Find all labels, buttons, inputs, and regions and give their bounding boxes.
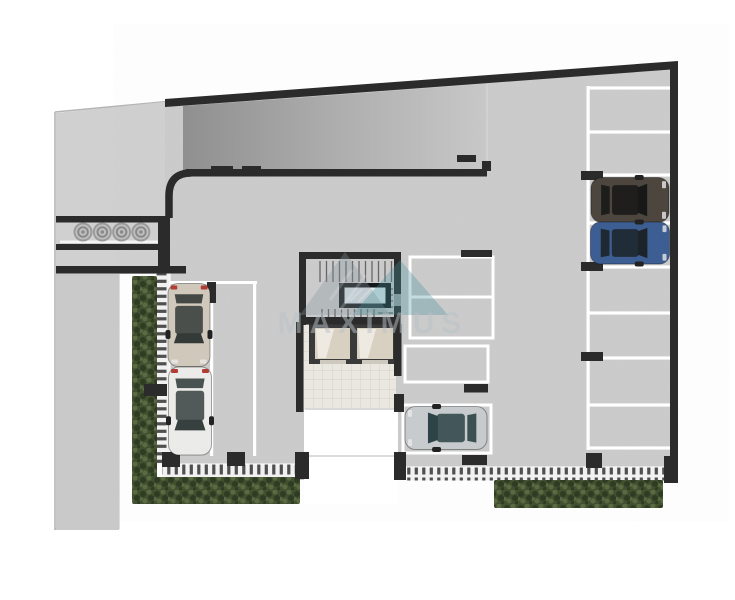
side-mirror bbox=[432, 404, 441, 409]
parking-divider bbox=[588, 86, 670, 89]
bin-room-counter-line bbox=[60, 241, 160, 244]
side-mirror bbox=[208, 330, 213, 339]
wall-lobby-right-stub bbox=[394, 394, 404, 412]
wall-stub bbox=[394, 452, 406, 480]
parking-divider bbox=[588, 130, 670, 133]
parking-divider bbox=[588, 311, 670, 314]
wall-binroom-top bbox=[56, 216, 168, 223]
wall-stub bbox=[461, 250, 492, 257]
headlight bbox=[408, 439, 412, 446]
wall-lower-left bbox=[56, 266, 186, 274]
bin-1 bbox=[75, 224, 92, 241]
roof-glass bbox=[612, 185, 639, 215]
door-marker bbox=[211, 166, 233, 176]
headlight bbox=[662, 212, 666, 219]
rear-window bbox=[601, 185, 610, 216]
windshield bbox=[638, 228, 647, 258]
wall-stub bbox=[664, 456, 678, 483]
car-beige-hatchback bbox=[166, 284, 213, 367]
taillight bbox=[201, 286, 208, 290]
taillight bbox=[202, 369, 209, 373]
car-silver-sedan bbox=[405, 404, 487, 452]
taillight bbox=[171, 286, 178, 290]
headlight bbox=[200, 360, 207, 364]
roof-glass bbox=[612, 229, 639, 257]
wall-binroom-bottom bbox=[56, 244, 168, 250]
wall-stub bbox=[581, 352, 603, 361]
wall-stair-top bbox=[299, 252, 401, 259]
headlight bbox=[172, 448, 179, 452]
fence-bottom-left bbox=[162, 464, 300, 478]
door-marker bbox=[242, 166, 261, 176]
car-blue-sedan bbox=[591, 220, 670, 267]
car-dark-suv bbox=[591, 175, 669, 225]
side-mirror bbox=[166, 330, 171, 339]
wall-stub bbox=[464, 384, 488, 393]
side-mirror bbox=[635, 262, 644, 267]
lobby-threshold bbox=[305, 408, 396, 410]
fence-bottom-right bbox=[406, 467, 668, 481]
wall-stub bbox=[586, 453, 602, 468]
parking-divider bbox=[588, 446, 670, 449]
floor-plan: MAXIMUS bbox=[0, 0, 735, 600]
bin-4 bbox=[132, 224, 149, 241]
roof-glass bbox=[437, 414, 465, 442]
parking-divider bbox=[588, 403, 670, 406]
floor-plan-canvas: MAXIMUS bbox=[0, 0, 735, 600]
wall-stub bbox=[462, 455, 487, 465]
car-white-sedan bbox=[166, 367, 214, 455]
watermark-text: MAXIMUS bbox=[278, 307, 469, 340]
bin-3 bbox=[113, 224, 130, 241]
side-mirror bbox=[432, 447, 441, 452]
headlight bbox=[662, 181, 666, 188]
taillight bbox=[171, 369, 178, 373]
windshield bbox=[174, 333, 204, 343]
headlight bbox=[171, 360, 178, 364]
roof-glass bbox=[176, 391, 204, 421]
headlight bbox=[201, 448, 208, 452]
side-mirror bbox=[166, 416, 171, 425]
parking-line bbox=[253, 284, 256, 456]
wall-stub bbox=[295, 452, 309, 479]
wall-stub bbox=[482, 161, 491, 171]
side-mirror bbox=[209, 416, 214, 425]
rear-window bbox=[175, 378, 204, 388]
headlight bbox=[663, 254, 667, 261]
side-mirror bbox=[635, 175, 644, 180]
hedge-bottom-left bbox=[132, 477, 300, 504]
headlight bbox=[408, 410, 412, 417]
door-marker bbox=[457, 155, 476, 162]
side-mirror bbox=[635, 220, 644, 225]
hedge-left bbox=[132, 276, 157, 480]
rear-window bbox=[175, 294, 204, 303]
sidewalk-strip bbox=[56, 274, 119, 530]
wall-binroom-right bbox=[158, 216, 170, 266]
windshield bbox=[428, 413, 438, 444]
bin-2 bbox=[94, 224, 111, 241]
wall-stub bbox=[227, 452, 245, 466]
roof-glass bbox=[175, 306, 203, 334]
wall-stub bbox=[144, 384, 167, 396]
windshield bbox=[638, 184, 647, 216]
wall-right bbox=[670, 65, 678, 483]
headlight bbox=[663, 225, 667, 232]
windshield bbox=[175, 420, 206, 431]
rear-window bbox=[601, 229, 610, 258]
rear-window bbox=[467, 413, 476, 442]
hedge-bottom-right bbox=[494, 480, 663, 508]
